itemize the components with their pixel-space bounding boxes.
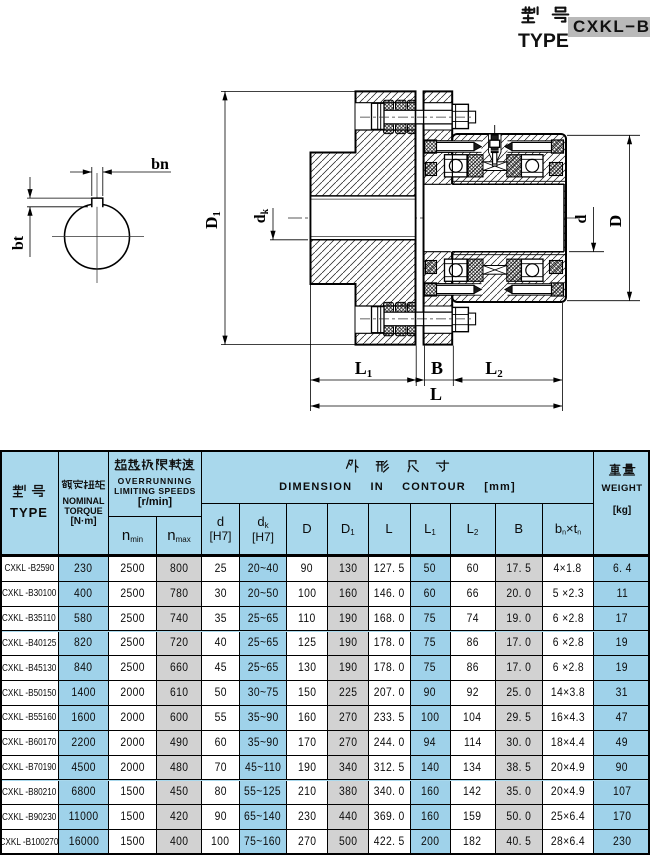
svg-text:bt: bt xyxy=(10,235,27,250)
svg-text:D: D xyxy=(606,215,625,227)
svg-text:L2: L2 xyxy=(485,358,503,380)
svg-text:D1: D1 xyxy=(202,211,223,229)
svg-text:B: B xyxy=(431,358,443,378)
svg-text:bn: bn xyxy=(151,156,169,173)
svg-text:L: L xyxy=(430,384,442,404)
svg-text:L1: L1 xyxy=(355,358,373,380)
svg-text:dk: dk xyxy=(252,208,271,223)
svg-text:d: d xyxy=(573,214,590,223)
